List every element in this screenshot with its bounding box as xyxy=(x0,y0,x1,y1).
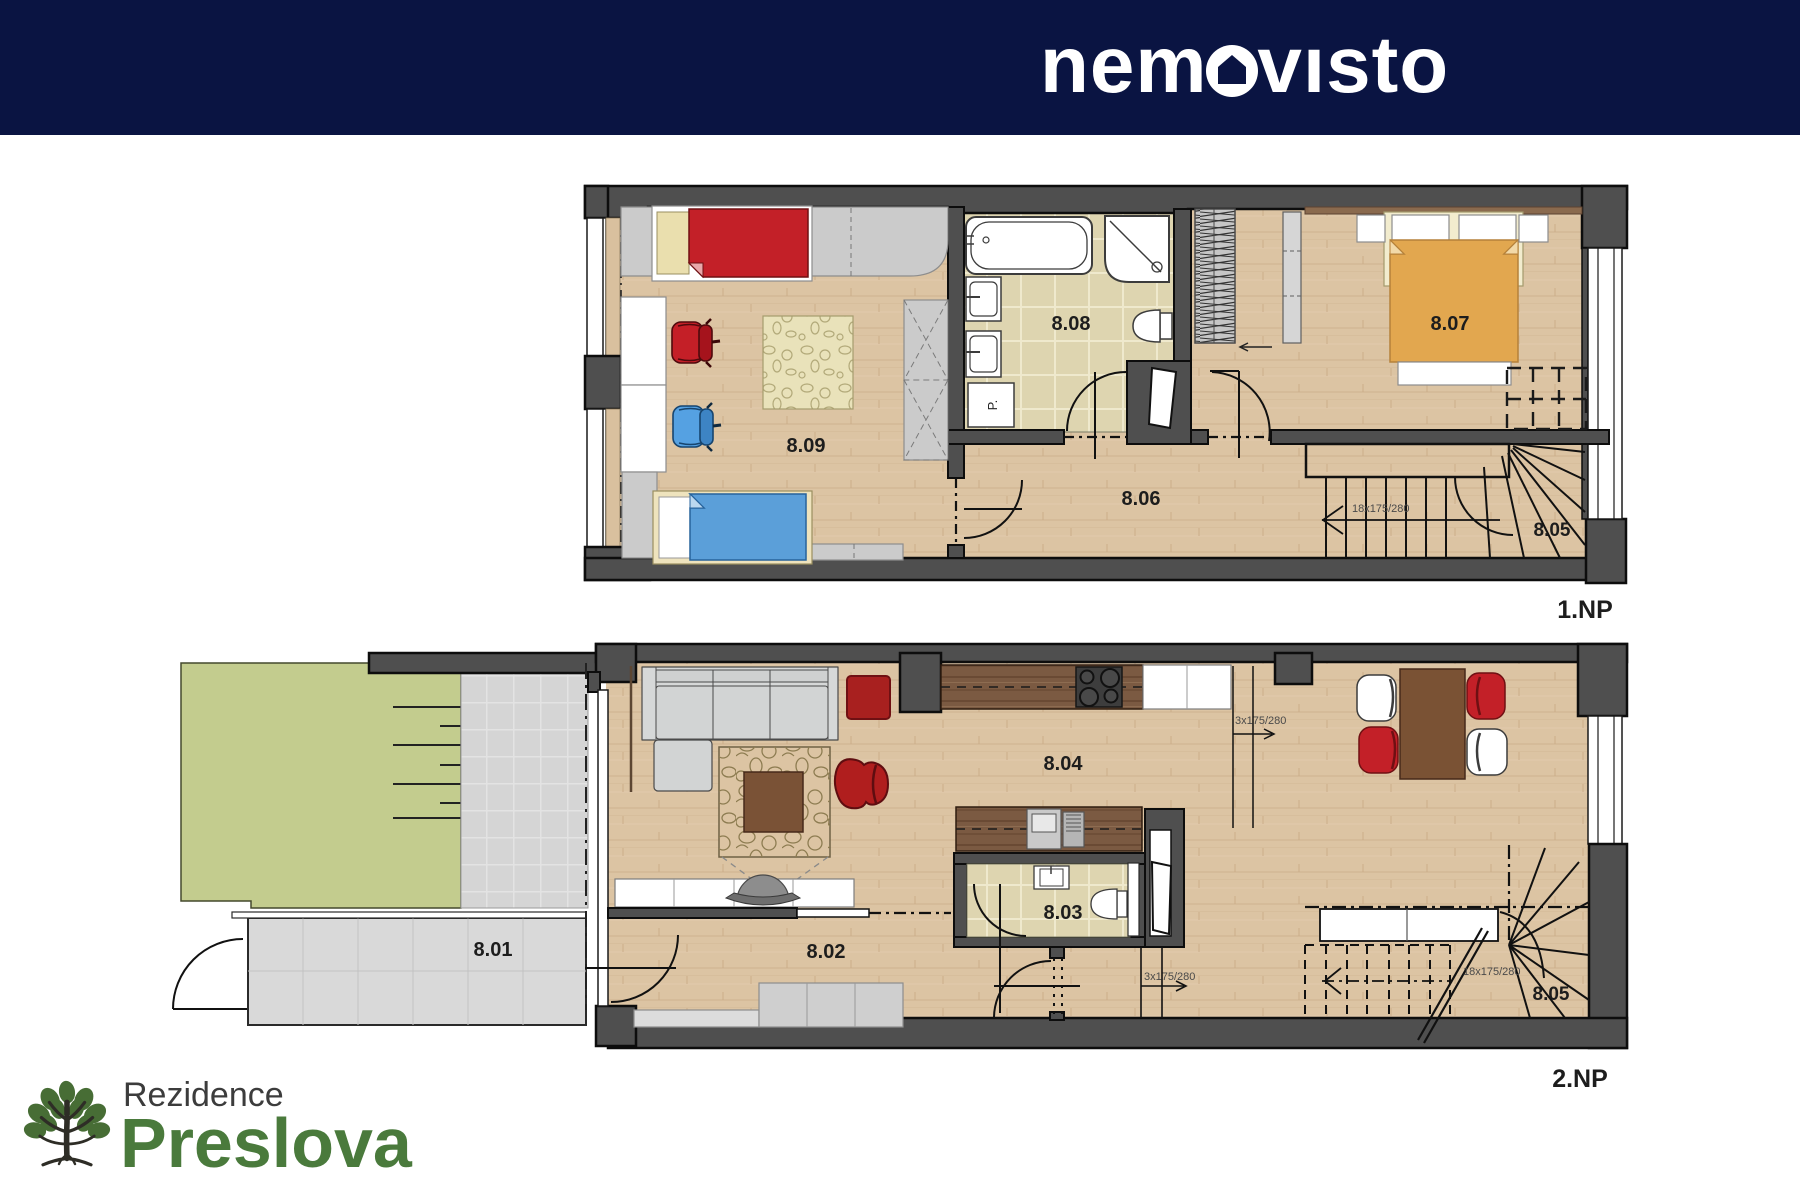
svg-text:8.03: 8.03 xyxy=(1044,902,1083,924)
svg-text:2.NP: 2.NP xyxy=(1552,1065,1608,1093)
svg-text:8.04: 8.04 xyxy=(1044,753,1084,775)
svg-text:8.05: 8.05 xyxy=(1534,520,1571,541)
svg-text:P.: P. xyxy=(985,400,1000,411)
svg-text:8.09: 8.09 xyxy=(787,435,826,457)
svg-text:8.02: 8.02 xyxy=(807,941,846,963)
svg-text:8.06: 8.06 xyxy=(1122,488,1161,510)
svg-text:3x175/280: 3x175/280 xyxy=(1235,715,1286,727)
svg-text:Preslova: Preslova xyxy=(120,1104,413,1182)
svg-text:3x175/280: 3x175/280 xyxy=(1144,971,1195,983)
svg-text:8.05: 8.05 xyxy=(1533,984,1570,1005)
svg-text:18x175/280: 18x175/280 xyxy=(1463,966,1521,978)
svg-text:1.NP: 1.NP xyxy=(1557,596,1613,624)
svg-text:8.01: 8.01 xyxy=(474,939,513,961)
svg-text:18x175/280: 18x175/280 xyxy=(1352,503,1410,515)
svg-text:8.08: 8.08 xyxy=(1052,313,1091,335)
svg-text:8.07: 8.07 xyxy=(1431,313,1470,335)
